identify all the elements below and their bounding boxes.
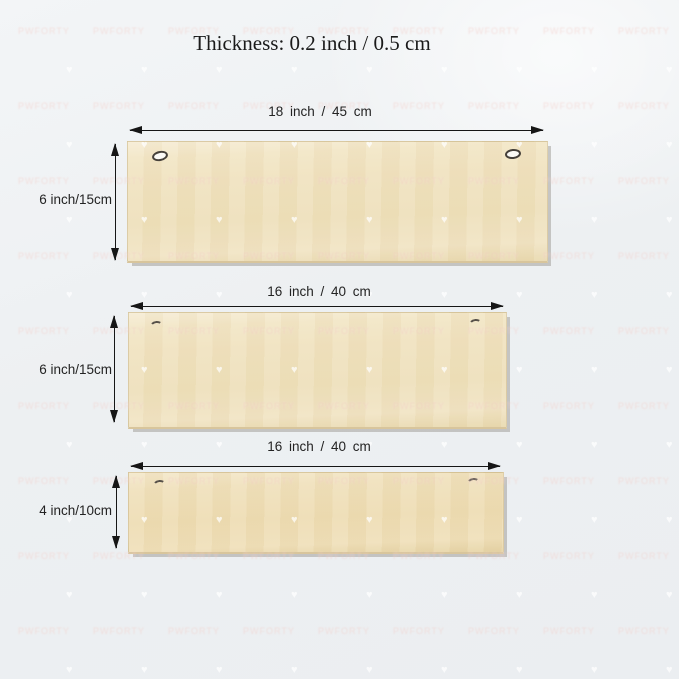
hanging-hole-right (505, 148, 522, 160)
plank3-height-arrow (116, 476, 117, 548)
hanging-hole-left (149, 320, 163, 332)
wood-plank-16x4 (128, 472, 504, 554)
plank2-width-label: 16 inch / 40 cm (219, 284, 419, 299)
plank2-width-arrow (131, 306, 503, 307)
hanging-hole-right (466, 477, 480, 489)
plank1-width-arrow (130, 130, 543, 131)
plank1-height-arrow (115, 144, 116, 260)
hanging-hole-left (151, 149, 169, 162)
plank1-width-label: 18 inch / 45 cm (220, 104, 420, 119)
wood-plank-18x6 (127, 141, 548, 263)
thickness-title: Thickness: 0.2 inch / 0.5 cm (0, 31, 624, 56)
plank2-height-label: 6 inch/15cm (8, 362, 112, 377)
hanging-hole-left (152, 479, 166, 491)
hanging-hole-right (468, 318, 482, 330)
product-dimension-image: PWFORTY♥PWFORTY♥PWFORTY♥PWFORTY♥PWFORTY♥… (0, 0, 679, 679)
plank1-height-label: 6 inch/15cm (8, 192, 112, 207)
plank2-height-arrow (114, 316, 115, 422)
plank3-height-label: 4 inch/10cm (8, 503, 112, 518)
plank3-width-label: 16 inch / 40 cm (219, 439, 419, 454)
plank3-width-arrow (131, 466, 500, 467)
wood-plank-16x6 (128, 312, 507, 429)
